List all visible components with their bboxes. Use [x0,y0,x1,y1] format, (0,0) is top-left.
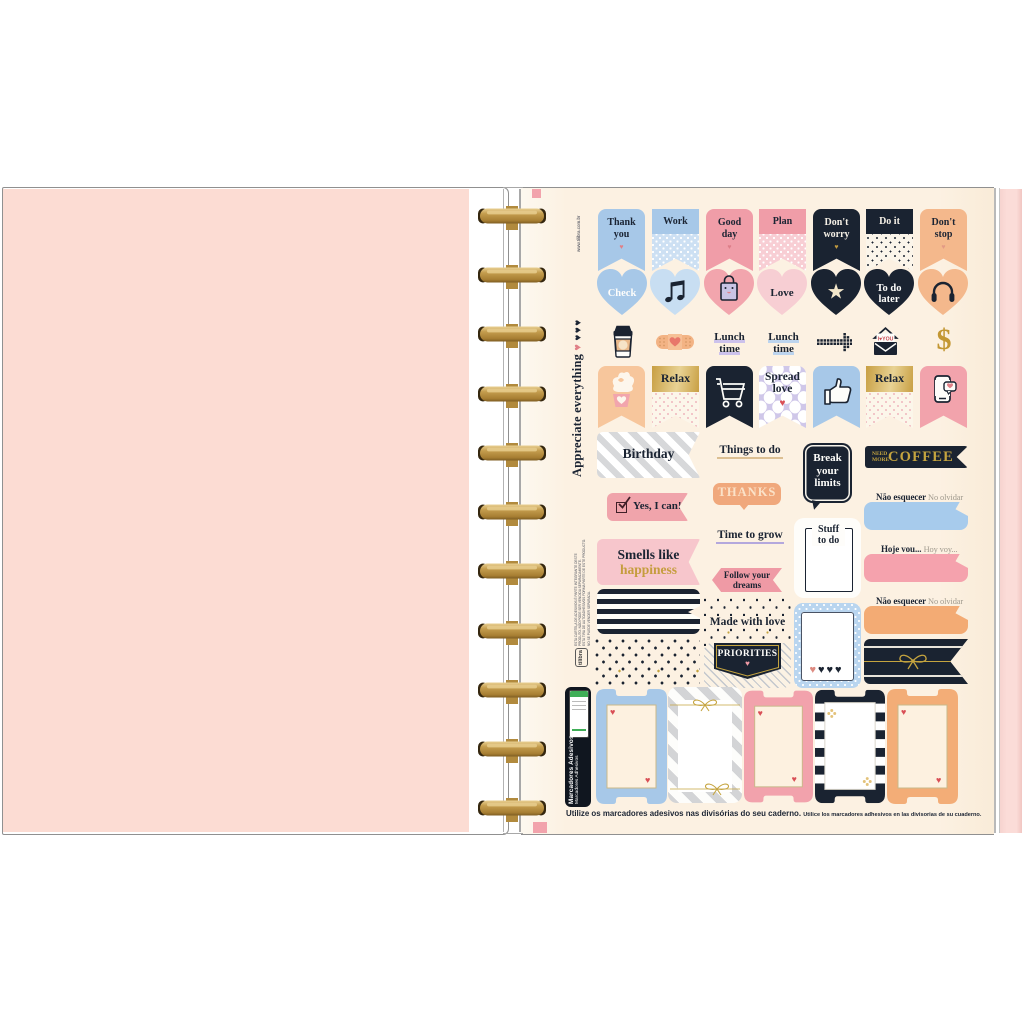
svg-text:Check: Check [608,288,637,299]
svg-text:♥: ♥ [645,775,650,785]
svg-text:♥: ♥ [936,775,941,785]
svg-text:later: later [879,294,900,305]
svg-text:I♥YOU: I♥YOU [878,337,894,343]
svg-text:♥: ♥ [758,708,763,718]
svg-text:To do: To do [876,283,901,294]
svg-text:★: ★ [827,280,846,304]
svg-text:♥: ♥ [901,707,906,717]
svg-text:♥: ♥ [792,774,797,784]
svg-text:♥: ♥ [610,707,615,717]
svg-text:Love: Love [770,287,793,299]
